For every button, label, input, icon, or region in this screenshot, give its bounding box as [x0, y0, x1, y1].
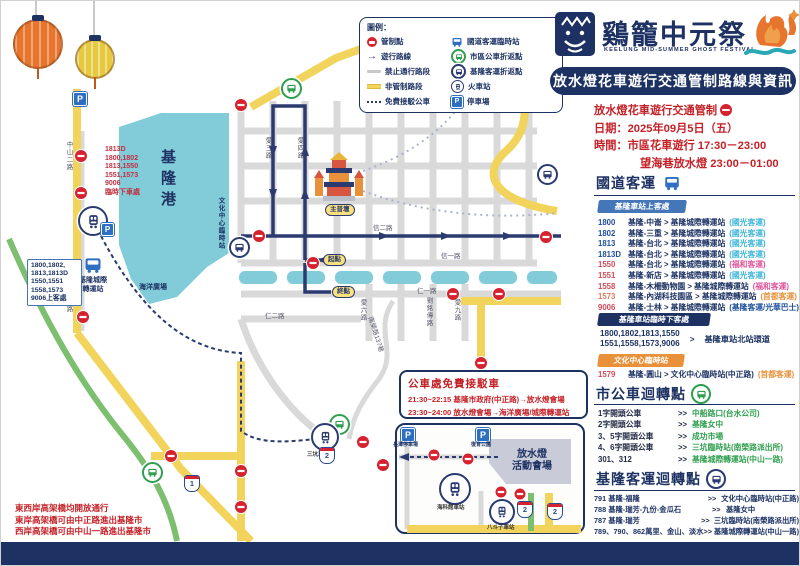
- harbor-label: 基隆港: [157, 149, 178, 212]
- museum-label: 海科館車站: [437, 503, 465, 511]
- lantern-decoration: [75, 39, 115, 79]
- keelung-bus-section-title: 基隆客運迴轉點: [596, 469, 726, 489]
- turnback-row: 4、6字開頭公車>>三坑臨時站(南榮路派出所): [598, 442, 799, 453]
- dropoff-badge: 基隆車站臨時下客處: [597, 313, 711, 326]
- route-row: 1800基隆-中崙 > 基隆城際轉運站(國光客運): [598, 217, 799, 228]
- parade-arrow-icon: →: [367, 52, 377, 62]
- legend-label: 免費接駁公車: [385, 96, 430, 107]
- legend-label: 管制點: [381, 36, 404, 47]
- museum-station: [439, 473, 471, 505]
- badouzi-station: [489, 499, 515, 525]
- legend-label: 禁止通行路段: [385, 66, 430, 77]
- badouzi-label: 八斗子車站: [487, 523, 515, 531]
- route-row: 1551基隆-新店 > 基隆城際轉運站(國光客運): [598, 270, 799, 281]
- legend-label: 基隆客運折返點: [470, 66, 523, 77]
- highway-shield-2: 2: [319, 447, 335, 464]
- shuttle-line-icon: [367, 101, 381, 103]
- city-bus-section-title: 市公車迴轉點: [596, 384, 711, 404]
- no-entry-icon: [367, 37, 377, 47]
- city-bus-turnback: [281, 78, 302, 99]
- intercity-bus-icon: [451, 36, 463, 48]
- route-row: 1550基隆-台北 > 基隆城際轉運站(福和客運): [598, 259, 799, 270]
- road-label: 信二路: [373, 225, 393, 232]
- inset-parking-left-label: 長潭停車場: [393, 441, 418, 448]
- highway-shield-1: 1: [184, 475, 200, 492]
- parade-end-pill: 終點: [332, 286, 355, 298]
- legend-label: 國道客運臨時站: [467, 36, 520, 47]
- temple-illustration: [313, 151, 365, 203]
- legend-label: 市區公車折返點: [470, 51, 523, 62]
- highway-bus-section-title: 國道客運: [596, 173, 683, 193]
- road-label: 仁一路: [417, 288, 437, 295]
- lantern-decoration: [13, 19, 63, 69]
- road-label: 愛四路: [296, 137, 303, 160]
- canal-piers: [239, 271, 557, 284]
- bottom-bar: [1, 542, 800, 565]
- boarding-badge: 基隆車站上客處: [597, 200, 687, 213]
- page-title-banner: 放水燈花車遊行交通管制路線與資訊: [550, 67, 796, 95]
- control-notice: 放水燈花車遊行交通管制 日期：2025年09月5日（五） 時間：市區花車遊行 1…: [594, 103, 779, 173]
- notice-time2: 望海巷放水燈 23:00－01:00: [594, 156, 779, 174]
- intercity-bus-icon: [661, 174, 683, 192]
- flame-wave-decoration: [742, 5, 800, 65]
- turnback-row: 301、312>>基隆城際轉運站(中山一路): [598, 454, 799, 465]
- route-row: 1813D基隆-台北 > 基隆城際轉運站(國光客運): [598, 249, 799, 260]
- road-label: 信一路: [441, 253, 461, 260]
- overpass-notes: 東西岸高架橋均開放通行 東岸高架橋可由中正路進出基隆市 西岸高架橋可由中山一路進…: [15, 503, 151, 538]
- notice-date: 日期：2025年09月5日（五）: [594, 121, 779, 139]
- culture-center-bus-stop: [229, 237, 250, 258]
- route-row: 1573基隆-內湖科技園區 > 基隆城際轉運站(首都客運): [598, 291, 799, 302]
- closed-road-icon: [367, 70, 381, 73]
- road-label: 愛六路: [359, 299, 366, 322]
- route-row: 1558基隆-木柵動物園 > 基隆城際轉運站(福和客運): [598, 281, 799, 292]
- open-road-icon: [367, 84, 381, 89]
- divider: [594, 404, 795, 405]
- temple-label: 主普壇: [325, 204, 355, 216]
- parade-start-pill: 起點: [323, 254, 346, 266]
- road-label: 中山二路: [65, 141, 72, 171]
- turnback-row: 1字開頭公車>>中船路口(台水公司): [598, 408, 799, 419]
- map-legend: 圖例： 管制點 →遊行路線 禁止通行路段 非管制路段 免費接駁公車 國道客運臨時…: [359, 17, 563, 113]
- no-entry-icon: [720, 104, 732, 116]
- inset-parking-right: P: [476, 428, 490, 442]
- city-bus-turnback: [142, 462, 163, 483]
- route-row: 1579基隆-圓山 > 文化中心臨時站(中正路)(首都客運): [598, 369, 799, 380]
- city-bus-stop-icon: [451, 49, 466, 64]
- divider: [594, 490, 795, 491]
- map-area: 圖例： 管制點 →遊行路線 禁止通行路段 非管制路段 免費接駁公車 國道客運臨時…: [1, 1, 591, 566]
- poster-page: 圖例： 管制點 →遊行路線 禁止通行路段 非管制路段 免費接駁公車 國道客運臨時…: [0, 0, 800, 566]
- route-row: 1802基隆-三重 > 基隆城際轉運站(國光客運): [598, 228, 799, 239]
- inset-parking-left: P: [401, 428, 415, 442]
- route-row: 1813基隆-台北 > 基隆城際轉運站(國光客運): [598, 238, 799, 249]
- route-row: 9006基隆-士林 > 基隆城際轉運站(基隆客運/光華巴士): [598, 302, 799, 313]
- turnback-row: 3、5字開頭公車>>成功市場: [598, 431, 799, 442]
- legend-label: 停車場: [467, 96, 490, 107]
- ocean-plaza-label: 海洋廣場: [139, 282, 167, 292]
- culture-route: 1579基隆-圓山 > 文化中心臨時站(中正路)(首都客運): [598, 369, 799, 380]
- train-station-icon: [451, 80, 464, 93]
- west-parking: P: [73, 92, 87, 106]
- city-bus-stop-icon: [691, 384, 711, 404]
- culture-badge: 文化中心臨時站: [597, 354, 685, 367]
- road-label: 愛三路: [264, 137, 271, 160]
- highway-shield-2: 2: [517, 501, 533, 518]
- parking-icon: P: [451, 96, 463, 108]
- divider: [594, 195, 795, 196]
- station-parking: P: [101, 223, 114, 236]
- legend-label: 火車站: [468, 81, 491, 92]
- culture-center-label: 文化中心臨時站: [215, 197, 225, 250]
- notice-time: 時間：市區花車遊行 17:30－23:00: [594, 138, 779, 156]
- legend-label: 遊行路線: [381, 51, 411, 62]
- legend-label: 非管制路段: [385, 81, 423, 92]
- festival-seal-logo: [554, 11, 596, 57]
- turnback-row: 788 基隆-瑞芳-九份-金瓜石>>基隆女中: [594, 505, 799, 516]
- notice-control-line: 放水燈花車遊行交通管制: [594, 103, 779, 121]
- intercity-terminal-icon: [83, 255, 103, 275]
- turnback-row: 789、790、862萬里、金山、淡水>>基隆城際轉運站(中山一路): [594, 527, 799, 538]
- legend-title: 圖例：: [367, 22, 555, 33]
- turnback-row: 791 基隆-福隆>>文化中心臨時站(中正路): [594, 494, 799, 505]
- keelung-bus-stop-icon: [706, 469, 726, 489]
- turnback-row: 2字開頭公車>>基隆女中: [598, 419, 799, 430]
- dropoff-note: 1813D 1800,1802 1813,1550 1551,1573 9006…: [105, 146, 140, 197]
- festival-subtitle: KEELUNG MID-SUMMER GHOST FESTIVAL: [604, 47, 756, 53]
- road-label: 劉銘傳路: [425, 297, 432, 327]
- turnback-row: 787 基隆-瑞芳>>三坑臨時站(南榮路派出所): [594, 516, 799, 527]
- city-bus-rows: 1字開頭公車>>中船路口(台水公司) 2字開頭公車>>基隆女中 3、5字開頭公車…: [598, 408, 799, 465]
- road-label: 仁二路: [265, 313, 285, 320]
- info-panel: 鷄籠中元祭 KEELUNG MID-SUMMER GHOST FESTIVAL …: [546, 1, 800, 566]
- keelung-bus-rows: 791 基隆-福隆>>文化中心臨時站(中正路) 788 基隆-瑞芳-九份-金瓜石…: [594, 494, 799, 538]
- shuttle-arrow: [399, 453, 409, 461]
- highway-routes: 1800基隆-中崙 > 基隆城際轉運站(國光客運) 1802基隆-三重 > 基隆…: [598, 217, 799, 312]
- inset-parking-right-label: 復育公園: [471, 441, 491, 448]
- keelung-bus-stop-icon: [451, 64, 466, 79]
- dropoff-row: 1800,1802,1813,1550 1551,1558,1573,9006 …: [600, 329, 797, 349]
- road-label: 愛九路: [453, 299, 460, 322]
- boarding-numbers-box: 1800,1802, 1813,1813D 1550,1551 1558,157…: [27, 259, 82, 306]
